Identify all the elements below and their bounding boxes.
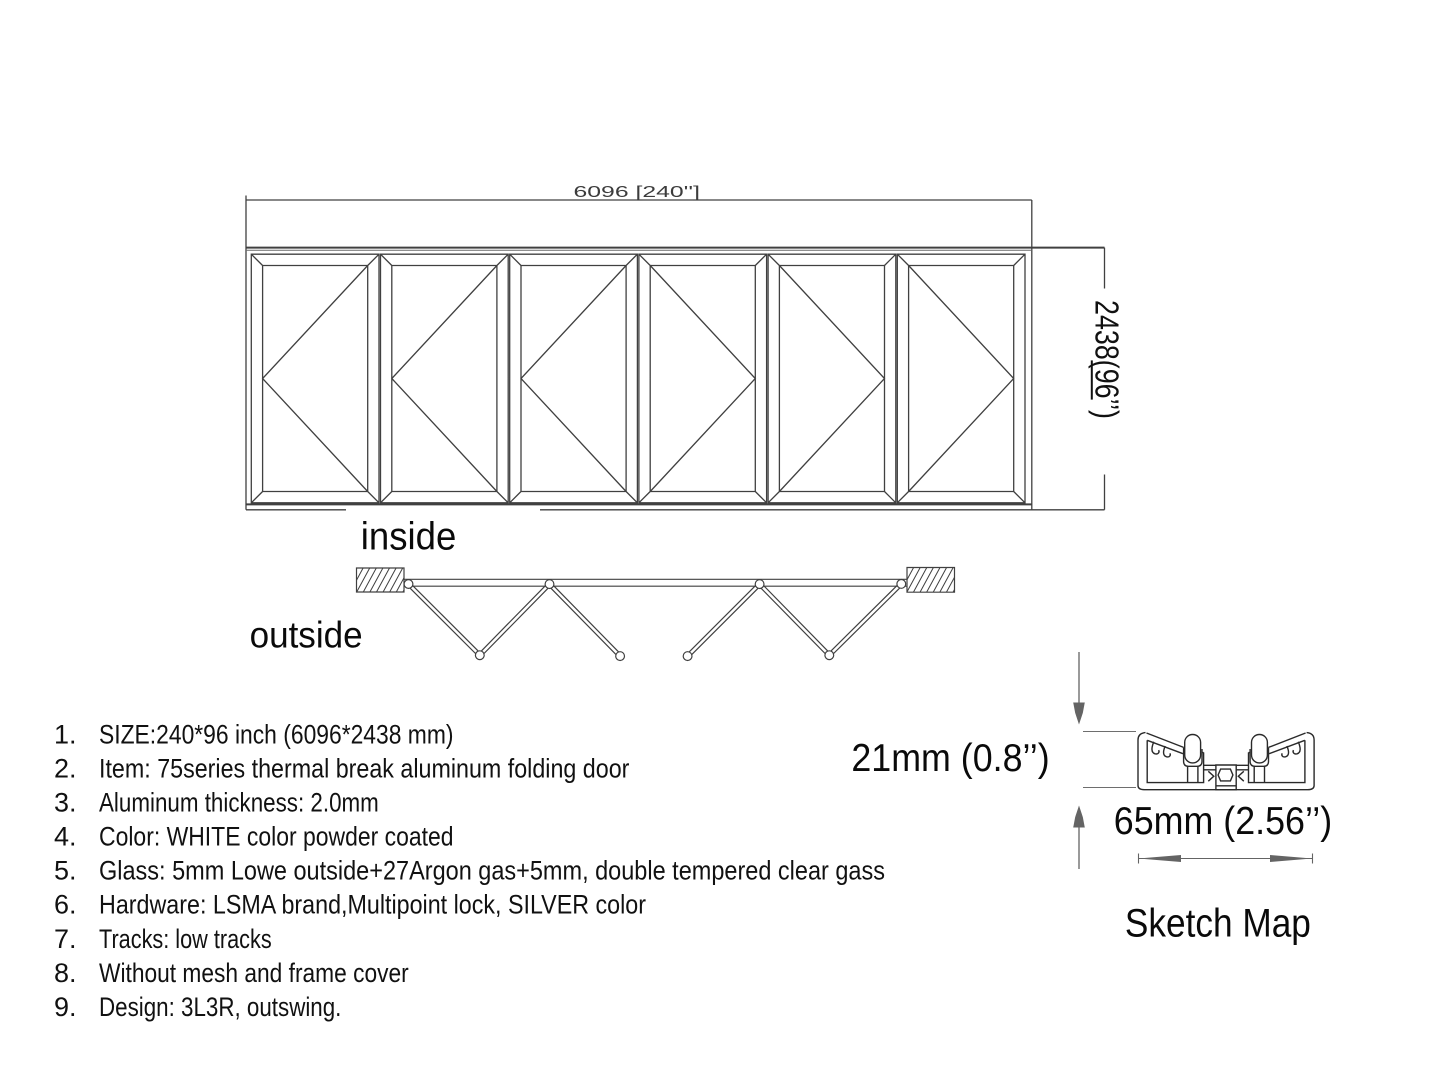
svg-text:SIZE:240*96 inch (6096*2438 mm: SIZE:240*96 inch (6096*2438 mm) xyxy=(99,720,454,750)
svg-text:65mm (2.56’’): 65mm (2.56’’) xyxy=(1114,800,1332,843)
svg-text:9.: 9. xyxy=(54,992,77,1022)
svg-text:4.: 4. xyxy=(54,822,77,852)
svg-text:2.: 2. xyxy=(54,754,77,784)
svg-text:5.: 5. xyxy=(54,856,77,886)
svg-text:1.: 1. xyxy=(54,720,77,750)
svg-text:2438(96’’): 2438(96’’) xyxy=(1089,300,1126,419)
svg-text:21mm (0.8’’): 21mm (0.8’’) xyxy=(851,737,1049,780)
svg-text:outside: outside xyxy=(250,614,363,656)
svg-text:inside: inside xyxy=(361,516,457,559)
svg-text:Design: 3L3R, outswing.: Design: 3L3R, outswing. xyxy=(99,992,341,1022)
svg-text:7.: 7. xyxy=(54,924,77,954)
svg-text:Hardware: LSMA brand,Multipoin: Hardware: LSMA brand,Multipoint lock, SI… xyxy=(99,890,646,920)
svg-text:Tracks: low tracks: Tracks: low tracks xyxy=(99,924,272,954)
svg-text:Aluminum thickness: 2.0mm: Aluminum thickness: 2.0mm xyxy=(99,788,379,818)
svg-text:8.: 8. xyxy=(54,958,77,988)
svg-text:Glass: 5mm Lowe outside+27Argo: Glass: 5mm Lowe outside+27Argon gas+5mm,… xyxy=(99,856,885,886)
svg-text:Item: 75series thermal break a: Item: 75series thermal break aluminum fo… xyxy=(99,754,629,784)
svg-text:Without mesh and frame cover: Without mesh and frame cover xyxy=(99,958,409,988)
svg-text:Color: WHITE color powder coat: Color: WHITE color powder coated xyxy=(99,822,454,852)
svg-text:3.: 3. xyxy=(54,788,77,818)
svg-text:6096 [240'']: 6096 [240''] xyxy=(574,184,701,201)
svg-text:Sketch Map: Sketch Map xyxy=(1125,902,1311,946)
svg-text:6.: 6. xyxy=(54,890,77,920)
